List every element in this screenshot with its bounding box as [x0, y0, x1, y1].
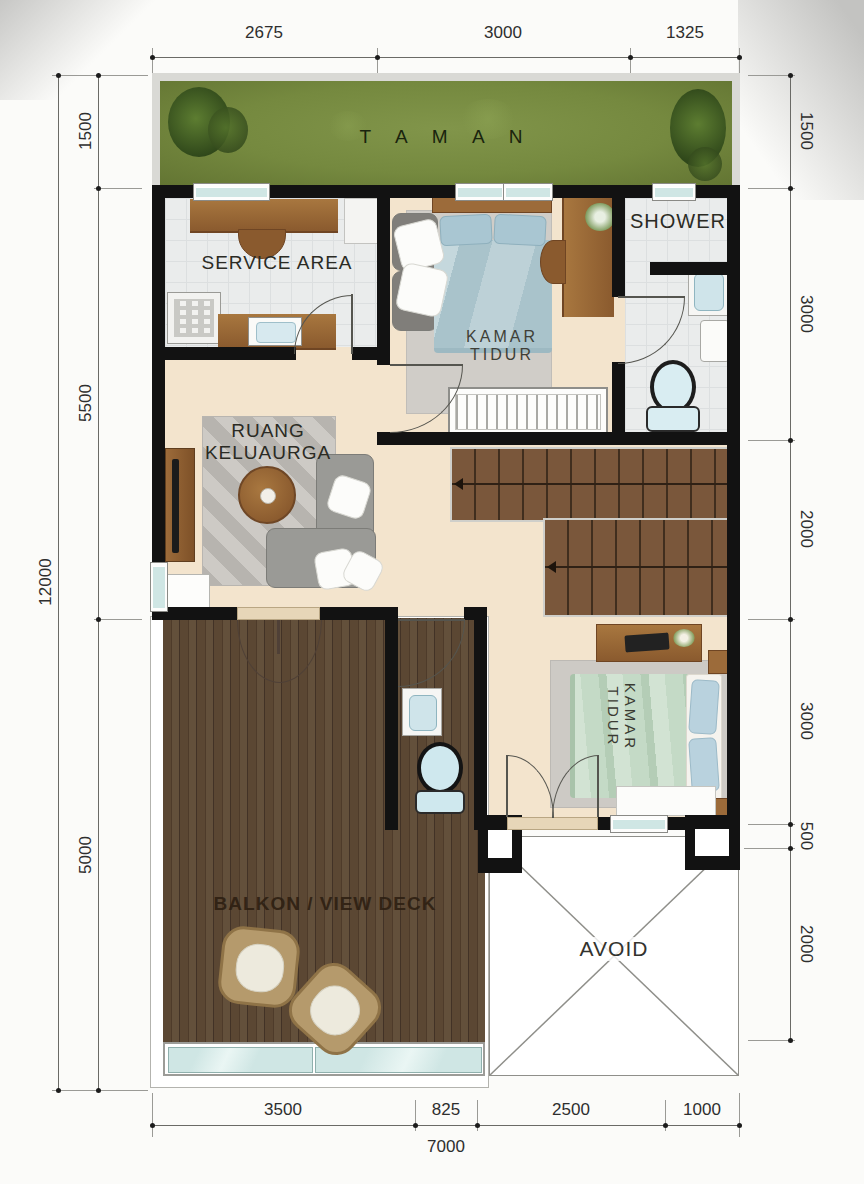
- stair-arrow-icon: [454, 478, 463, 490]
- room-label-living: RUANG KELUAURGA: [178, 420, 358, 464]
- wall-bathroom-left: [385, 607, 398, 830]
- wall-top: [551, 185, 652, 198]
- window-bedroom1: [455, 183, 505, 201]
- desk-flower-icon: [673, 629, 695, 647]
- window-bedroom1: [503, 183, 553, 201]
- bed2-pillow: [688, 679, 720, 735]
- column-core: [488, 830, 512, 858]
- bathroom-sink: [402, 688, 442, 736]
- door-sill: [507, 817, 598, 830]
- sink-basin: [694, 273, 724, 311]
- wall-shower-left: [612, 362, 625, 445]
- bedroom1-desk-chair: [540, 240, 566, 284]
- floor-plan-canvas: 2675 3000 1325 1500 5500 5000 12000: [0, 0, 864, 1184]
- dim-top-1: 2675: [232, 24, 296, 42]
- tv-icon: [172, 459, 179, 553]
- toilet: [417, 742, 463, 794]
- room-label-shower: SHOWER: [630, 210, 726, 233]
- door-leaf-service: [351, 294, 353, 354]
- dim-right-6: 2000: [797, 912, 815, 976]
- window-shower: [652, 183, 696, 201]
- tv-console: [165, 448, 195, 562]
- window-living-left: [150, 562, 168, 612]
- bed1-pillow: [493, 214, 546, 247]
- wall-left: [152, 185, 165, 620]
- wall-shower-left: [612, 185, 625, 297]
- room-label-bedroom2: KAMAR TIDUR: [605, 681, 639, 753]
- laptop-icon: [624, 632, 669, 652]
- service-sink: [248, 317, 302, 346]
- washing-machine: [167, 292, 221, 344]
- wall-service-bottom: [352, 347, 390, 360]
- door-leaf-bathroom: [398, 619, 465, 621]
- column-core: [695, 829, 729, 856]
- plant-icon: [688, 147, 722, 181]
- dim-left-total: 12000: [37, 550, 55, 614]
- room-label-service: SERVICE AREA: [177, 252, 377, 274]
- toilet-tank: [646, 406, 700, 432]
- dim-top-3: 1325: [653, 24, 717, 42]
- dim-bottom-total: 7000: [414, 1138, 478, 1156]
- room-label-bedroom1-line1: KAMAR: [442, 328, 562, 346]
- coffee-table: [238, 466, 296, 524]
- bedroom2-desk: [596, 624, 702, 662]
- column: [685, 815, 740, 870]
- table-deco: [260, 488, 276, 504]
- stairs-lower-flight: [543, 518, 731, 617]
- window-bedroom2: [610, 815, 668, 833]
- wall-top: [268, 185, 455, 198]
- wicker-chair: [216, 924, 302, 1010]
- glass-panel: [168, 1047, 313, 1073]
- door-leaf-bedroom2: [597, 755, 599, 817]
- dim-left-2: 5500: [77, 371, 95, 435]
- stairs-upper-flight: [450, 447, 731, 522]
- desk-plant-icon: [585, 203, 615, 231]
- door-leaf-shower: [618, 296, 685, 298]
- door-leaf-bedroom1: [390, 364, 463, 366]
- sink-basin: [409, 695, 437, 731]
- chair-cushion: [234, 942, 287, 995]
- rack-hangers: [455, 394, 601, 430]
- bedroom1-closet-rack: [448, 387, 608, 437]
- dim-bottom-4: 1000: [670, 1101, 734, 1119]
- room-taman: T A M A N: [152, 73, 740, 192]
- void-area: AVOID: [489, 836, 739, 1076]
- door-leaf-balcony: [277, 620, 280, 654]
- wall-shower-stub: [650, 262, 740, 275]
- bed2-pillow: [688, 737, 720, 793]
- room-label-bedroom1-line2: TIDUR: [442, 346, 562, 364]
- dim-top-2: 3000: [471, 24, 535, 42]
- dim-bottom-2: 825: [414, 1101, 478, 1119]
- corner-shade-left: [0, 0, 160, 100]
- wall-bedroom1-bottom: [377, 432, 740, 445]
- washer-grid: [174, 299, 214, 337]
- room-label-bedroom2-line2: TIDUR: [605, 681, 622, 753]
- chair-cushion: [301, 977, 369, 1045]
- room-label-void: AVOID: [490, 937, 738, 961]
- dim-bottom-3: 2500: [539, 1101, 603, 1119]
- dim-right-5: 500: [797, 804, 815, 868]
- service-desk: [190, 199, 338, 233]
- dim-bottom-1: 3500: [251, 1101, 315, 1119]
- dim-right-4: 3000: [797, 689, 815, 753]
- dim-left-1: 1500: [77, 99, 95, 163]
- shower-cabinet: [700, 320, 730, 362]
- room-label-balcony: BALKON / VIEW DECK: [195, 893, 455, 915]
- room-label-taman: T A M A N: [152, 126, 740, 148]
- window-service: [193, 183, 270, 201]
- pillow: [395, 262, 450, 319]
- wall-service-bottom: [152, 347, 296, 360]
- wall-right: [727, 185, 740, 830]
- dim-left-3: 5000: [77, 823, 95, 887]
- wall-service-right: [377, 185, 390, 365]
- dim-right-3: 2000: [797, 497, 815, 561]
- bedroom2-bench: [616, 786, 716, 816]
- room-label-bedroom1: KAMAR TIDUR: [442, 328, 562, 364]
- dim-right-2: 3000: [797, 282, 815, 346]
- toilet-tank: [415, 790, 465, 814]
- dim-right-1: 1500: [797, 99, 815, 163]
- bed1-pillow: [439, 214, 492, 247]
- door-leaf-bedroom2: [506, 755, 508, 817]
- service-cabinet: [344, 198, 380, 244]
- stair-arrow-icon: [547, 561, 556, 573]
- sink-basin: [256, 322, 296, 343]
- room-label-bedroom2-line1: KAMAR: [622, 681, 639, 753]
- door-sill: [237, 607, 320, 620]
- wall-bathroom-right: [474, 607, 487, 830]
